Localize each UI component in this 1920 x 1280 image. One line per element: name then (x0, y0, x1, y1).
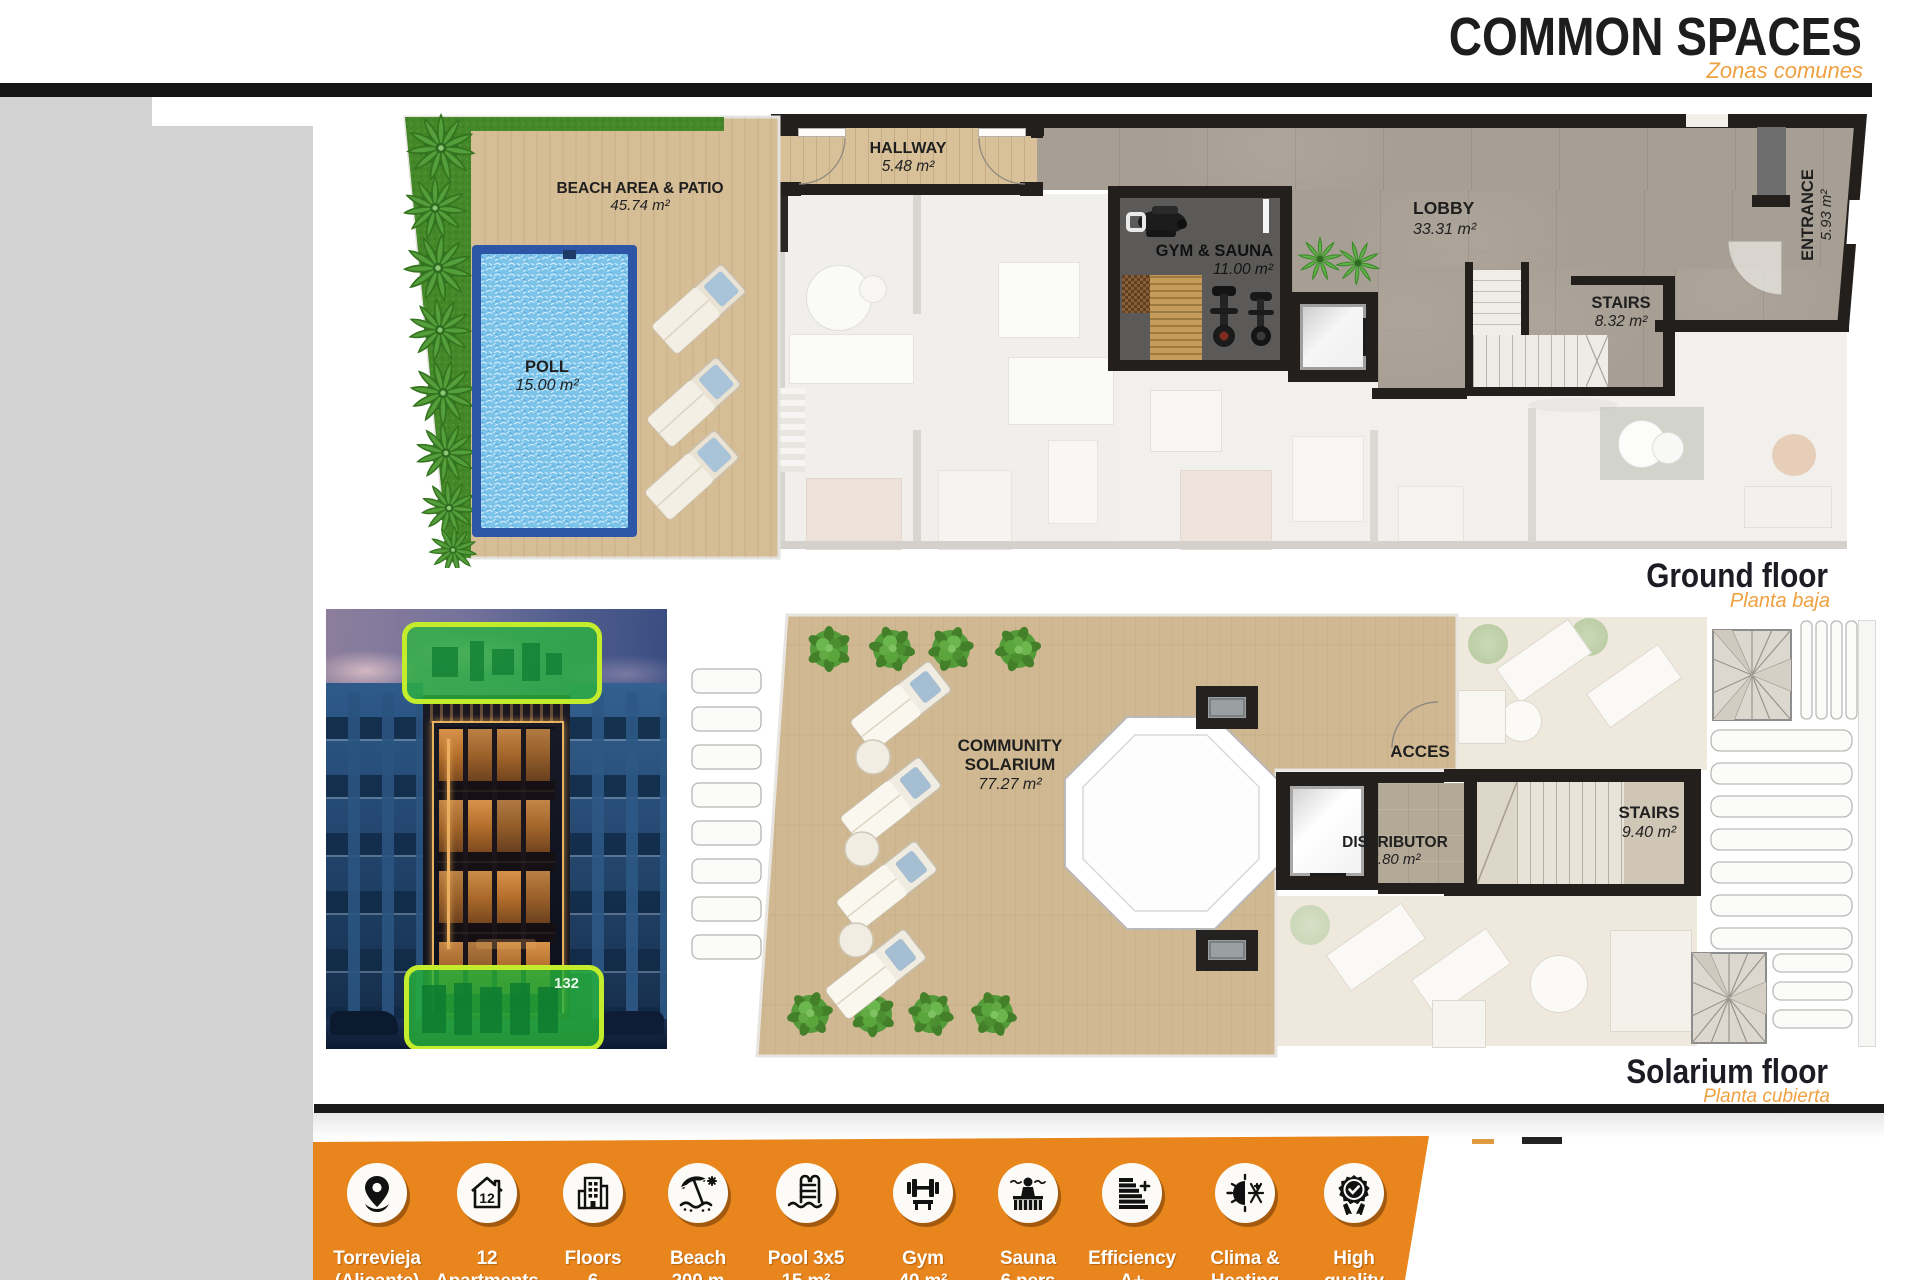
svg-text:12: 12 (479, 1190, 495, 1206)
